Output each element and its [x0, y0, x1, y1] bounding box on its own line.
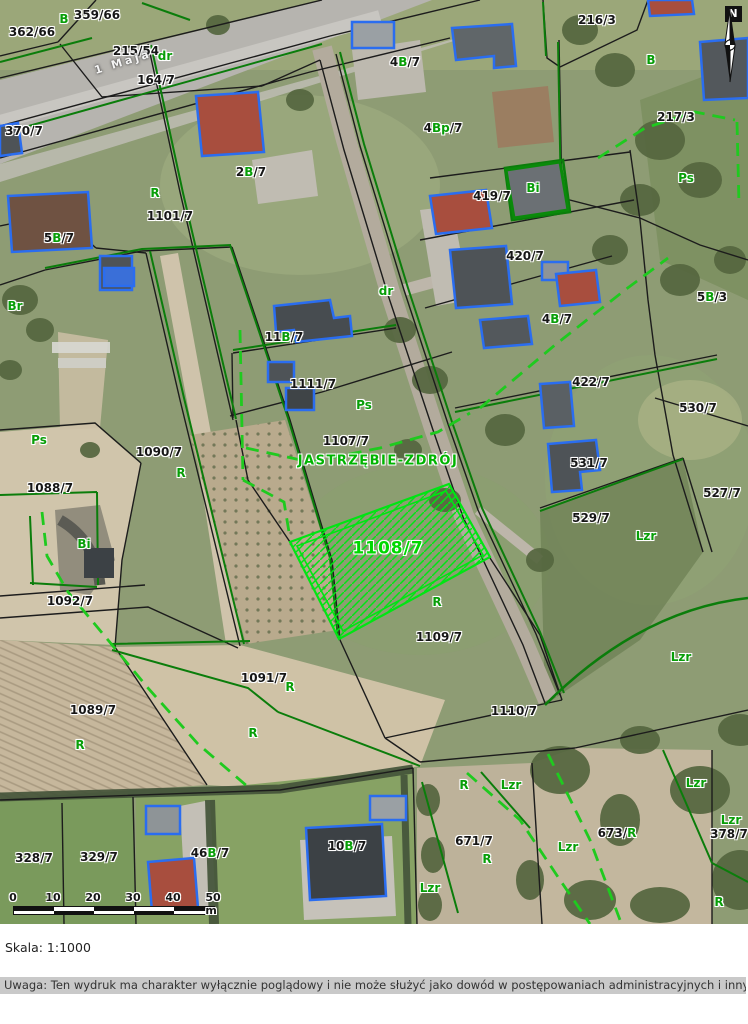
- parcel-label-422-7: 422/7: [572, 376, 610, 388]
- landuse-label-b: B: [59, 13, 68, 25]
- parcel-label-530-7: 530/7: [679, 402, 717, 414]
- parcel-label-328-7: 328/7: [15, 852, 53, 864]
- parcel-label-1092-7: 1092/7: [47, 595, 93, 607]
- landuse-label-r: R: [248, 727, 257, 739]
- scale-bar-ticks: 01020304050 m: [13, 891, 215, 904]
- scale-bar-graphic: [13, 906, 215, 915]
- parcel-label-1088-7: 1088/7: [27, 482, 73, 494]
- print-page: 362/66359/66215/54164/7370/71101/7216/32…: [0, 0, 748, 1024]
- landuse-label-b: B: [646, 54, 655, 66]
- parcel-label-359-66: 359/66: [74, 9, 120, 21]
- landuse-label-lzr: Lzr: [721, 814, 742, 826]
- landuse-label-r: R: [459, 779, 468, 791]
- parcel-landuse-label-4Bp-7: 4Bp/7: [424, 122, 463, 134]
- parcel-landuse-label-5B-3: 5B/3: [697, 291, 727, 303]
- parcel-landuse-label-4B-7: 4B/7: [390, 56, 420, 68]
- landuse-label-r: R: [176, 467, 185, 479]
- parcel-label-1091-7: 1091/7: [241, 672, 287, 684]
- north-arrow: N: [722, 6, 744, 106]
- landuse-label-lzr: Lzr: [420, 882, 441, 894]
- parcel-landuse-label-673-R: 673/R: [598, 827, 637, 839]
- landuse-label-lzr: Lzr: [558, 841, 579, 853]
- parcel-label-216-3: 216/3: [578, 14, 616, 26]
- parcel-label-378-7: 378/7: [710, 828, 748, 840]
- landuse-label-bi: Bi: [77, 538, 90, 550]
- landuse-label-ps: Ps: [678, 172, 694, 184]
- selected-parcel-label: 1108/7: [352, 541, 423, 558]
- parcel-landuse-label-46B-7: 46B/7: [191, 847, 230, 859]
- scale-tick-40: 40: [165, 891, 180, 904]
- disclaimer-bar: Uwaga: Ten wydruk ma charakter wyłącznie…: [0, 977, 746, 994]
- landuse-label-r: R: [432, 596, 441, 608]
- map-viewport[interactable]: 362/66359/66215/54164/7370/71101/7216/32…: [0, 0, 748, 924]
- landuse-label-br: Br: [7, 300, 22, 312]
- parcel-label-419-7: 419/7: [473, 190, 511, 202]
- parcel-label-164-7: 164/7: [137, 74, 175, 86]
- parcel-label-1101-7: 1101/7: [147, 210, 193, 222]
- map-labels-layer: 362/66359/66215/54164/7370/71101/7216/32…: [0, 0, 748, 924]
- scale-tick-50-m: 50 m: [205, 891, 220, 917]
- landuse-label-ps: Ps: [356, 399, 372, 411]
- landuse-label-r: R: [150, 187, 159, 199]
- landuse-label-r: R: [482, 853, 491, 865]
- parcel-landuse-label-11B-7: 11B/7: [265, 331, 304, 343]
- city-boundary-label: JASTRZĘBIE-ZDRÓJ: [298, 455, 459, 468]
- parcel-label-1109-7: 1109/7: [416, 631, 462, 643]
- parcel-label-1107-7: 1107/7: [323, 435, 369, 447]
- parcel-landuse-label-5B-7: 5B/7: [44, 232, 74, 244]
- parcel-label-1090-7: 1090/7: [136, 446, 182, 458]
- landuse-label-ps: Ps: [31, 434, 47, 446]
- parcel-label-527-7: 527/7: [703, 487, 741, 499]
- scale-tick-30: 30: [125, 891, 140, 904]
- parcel-landuse-label-4B-7: 4B/7: [542, 313, 572, 325]
- parcel-label-531-7: 531/7: [570, 457, 608, 469]
- parcel-label-329-7: 329/7: [80, 851, 118, 863]
- landuse-label-lzr: Lzr: [636, 530, 657, 542]
- parcel-label-362-66: 362/66: [9, 26, 55, 38]
- scale-bar: 01020304050 m: [13, 891, 215, 917]
- landuse-label-lzr: Lzr: [686, 777, 707, 789]
- landuse-label-bi: Bi: [526, 182, 539, 194]
- scale-tick-20: 20: [85, 891, 100, 904]
- landuse-label-lzr: Lzr: [501, 779, 522, 791]
- parcel-label-370-7: 370/7: [5, 125, 43, 137]
- landuse-label-lzr: Lzr: [671, 651, 692, 663]
- landuse-label-r: R: [714, 896, 723, 908]
- scale-tick-10: 10: [45, 891, 60, 904]
- compass-needle-icon: [722, 6, 738, 86]
- parcel-label-671-7: 671/7: [455, 835, 493, 847]
- parcel-label-217-3: 217/3: [657, 111, 695, 123]
- parcel-label-420-7: 420/7: [506, 250, 544, 262]
- disclaimer-text: Uwaga: Ten wydruk ma charakter wyłącznie…: [4, 978, 746, 992]
- scale-text: Skala: 1:1000: [5, 940, 91, 955]
- scale-tick-0: 0: [9, 891, 17, 904]
- landuse-label-dr: dr: [158, 50, 173, 62]
- parcel-landuse-label-2B-7: 2B/7: [236, 166, 266, 178]
- parcel-landuse-label-10B-7: 10B/7: [328, 840, 367, 852]
- parcel-label-529-7: 529/7: [572, 512, 610, 524]
- landuse-label-dr: dr: [379, 285, 394, 297]
- parcel-label-1111-7: 1111/7: [290, 378, 336, 390]
- parcel-label-1110-7: 1110/7: [491, 705, 537, 717]
- landuse-label-r: R: [285, 681, 294, 693]
- landuse-label-r: R: [75, 739, 84, 751]
- parcel-label-1089-7: 1089/7: [70, 704, 116, 716]
